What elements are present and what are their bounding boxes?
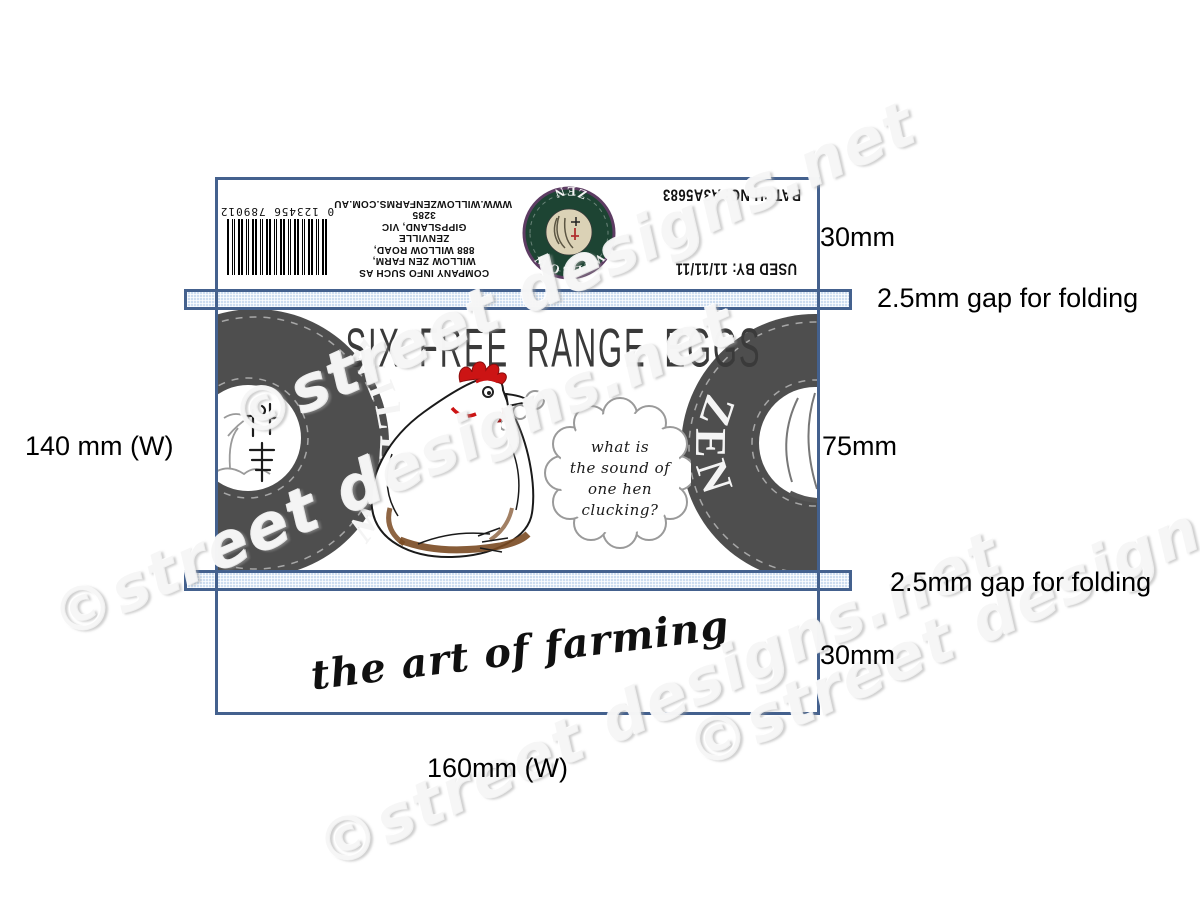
- brand-logo-badge: WILLOW ZEN: [512, 180, 627, 287]
- thought-line: the sound of: [570, 459, 672, 477]
- dates-block: USED BY: 11/11/11 BATCH NO: A3A5683: [627, 180, 817, 287]
- thought-line: clucking?: [582, 501, 659, 519]
- batch-no-text: BATCH NO: A3A5683: [662, 186, 801, 206]
- company-info-block: COMPANY INFO SUCH AS WILLOW ZEN FARM, 88…: [336, 180, 512, 287]
- willow-zen-logo-icon: WILLOW ZEN: [522, 186, 618, 282]
- company-line: WWW.WILLOWZENFARMS.COM.AU: [336, 198, 512, 210]
- dieline-canvas: USED BY: 11/11/11 BATCH NO: A3A5683: [0, 0, 1200, 900]
- front-panel: WILLOW ZEN SIX FREE RANGE EGGS: [218, 310, 817, 570]
- company-line: COMPANY INFO SUCH AS: [336, 267, 512, 279]
- thought-bubble: what is the sound of one hen clucking?: [501, 388, 691, 563]
- company-line: 3285: [336, 209, 512, 221]
- thought-puffs: [501, 391, 544, 430]
- hen-pupil: [487, 391, 491, 395]
- fold-gap-strip-top: [184, 289, 852, 310]
- dim-label-top-flap: 30mm: [820, 222, 895, 253]
- company-line: GIPPSLAND, VIC: [336, 221, 512, 233]
- fold-gap-strip-bottom: [184, 570, 852, 591]
- dim-label-gap-top: 2.5mm gap for folding: [877, 283, 1138, 314]
- company-line: ZENVILLE: [336, 232, 512, 244]
- barcode-block: 0 123456 789012: [218, 180, 336, 287]
- dim-label-gap-bottom: 2.5mm gap for folding: [890, 567, 1151, 598]
- dim-label-total-width: 160mm (W): [427, 753, 568, 784]
- company-line: WILLOW ZEN FARM,: [336, 255, 512, 267]
- dim-label-side-height: 140 mm (W): [25, 431, 174, 462]
- barcode-icon: [227, 219, 327, 275]
- used-by-text: USED BY: 11/11/11: [675, 260, 797, 280]
- barcode-number: 0 123456 789012: [218, 205, 336, 218]
- company-line: 888 WILLOW ROAD,: [336, 244, 512, 256]
- dim-label-bottom-flap: 30mm: [820, 640, 895, 671]
- top-flap-panel: USED BY: 11/11/11 BATCH NO: A3A5683: [218, 180, 817, 287]
- thought-line: one hen: [588, 480, 652, 498]
- thought-line: what is: [591, 438, 649, 456]
- dim-label-front-height: 75mm: [822, 431, 897, 462]
